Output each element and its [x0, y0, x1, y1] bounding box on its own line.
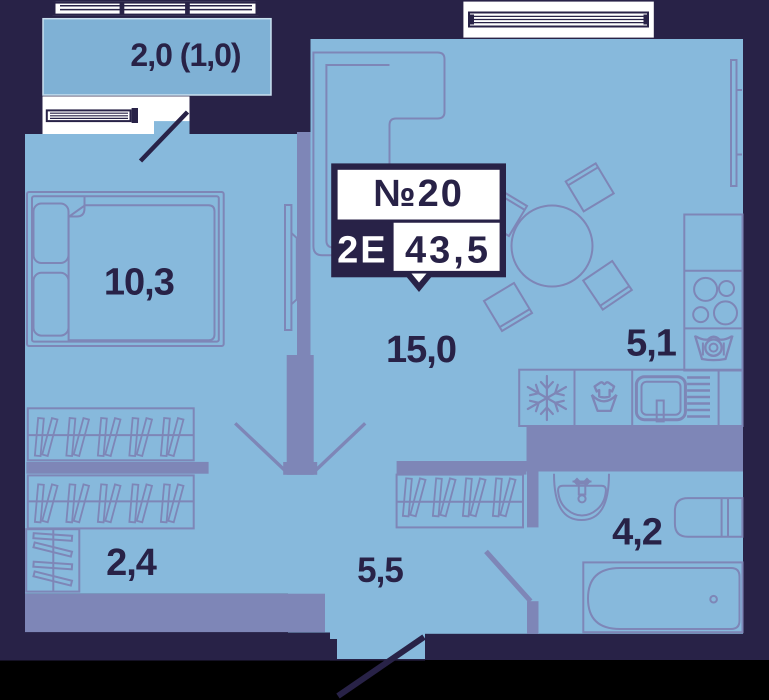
- svg-text:15,0: 15,0: [386, 329, 456, 371]
- svg-text:5,1: 5,1: [626, 323, 677, 365]
- svg-text:10,3: 10,3: [104, 262, 174, 304]
- svg-text:43,5: 43,5: [405, 230, 491, 272]
- svg-text:5,5: 5,5: [357, 551, 403, 590]
- svg-text:2E: 2E: [337, 230, 387, 272]
- svg-text:№20: №20: [373, 173, 464, 215]
- svg-text:2,4: 2,4: [106, 542, 157, 584]
- svg-text:4,2: 4,2: [612, 512, 662, 554]
- svg-text:2,0 (1,0): 2,0 (1,0): [130, 37, 241, 73]
